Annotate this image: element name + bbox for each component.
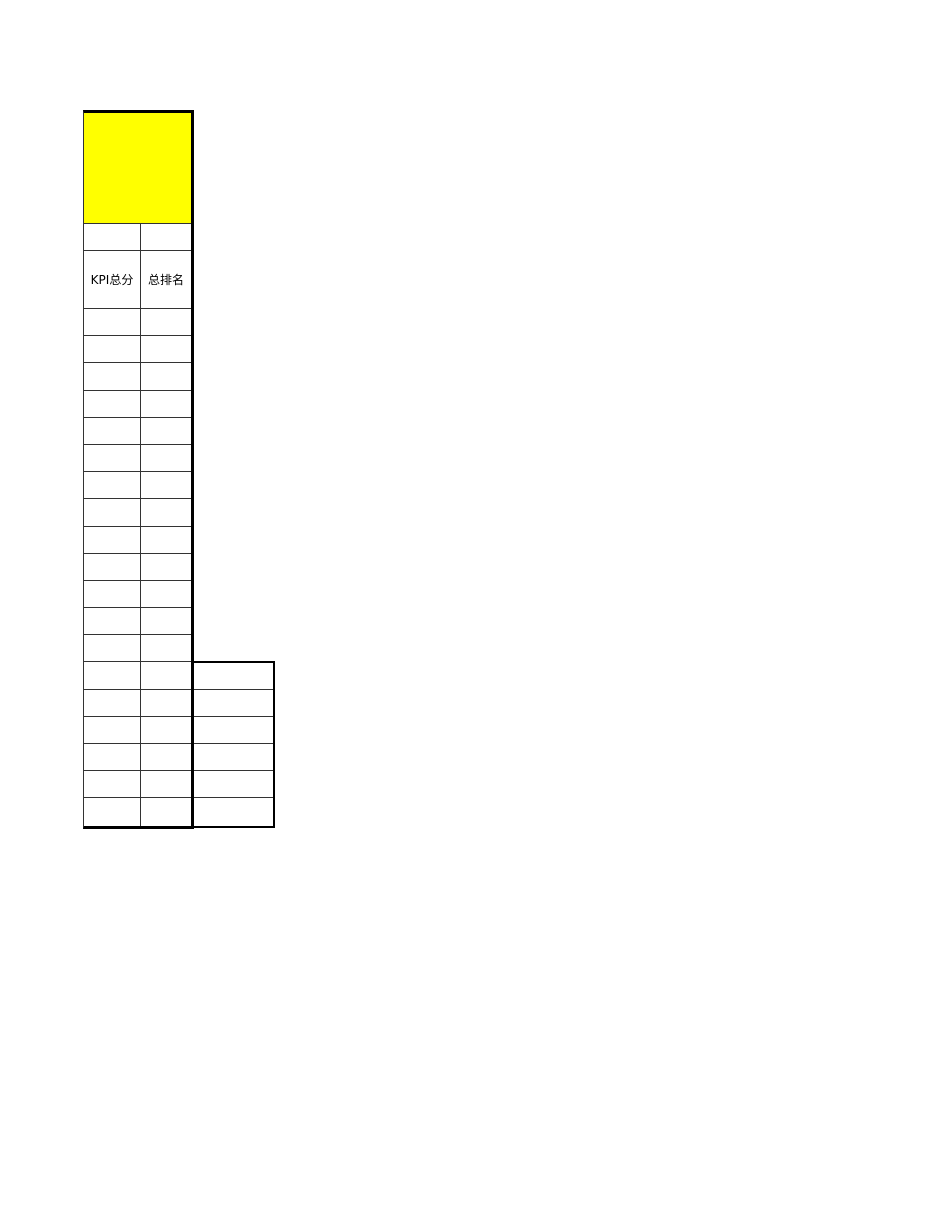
table-row	[84, 798, 191, 825]
kpi-table: KPI总分 总排名	[83, 110, 194, 829]
spreadsheet-cell[interactable]	[141, 771, 191, 797]
spreadsheet-cell[interactable]	[194, 771, 273, 798]
spreadsheet-cell[interactable]	[141, 472, 191, 498]
spreadsheet-cell[interactable]	[84, 581, 141, 607]
spreadsheet-cell[interactable]	[84, 527, 141, 553]
table-row	[84, 527, 191, 554]
spreadsheet-cell[interactable]	[84, 798, 141, 825]
spreadsheet-cell[interactable]	[84, 635, 141, 661]
spreadsheet-cell[interactable]	[84, 771, 141, 797]
table-row	[84, 771, 191, 798]
table-row	[84, 472, 191, 499]
table-row	[84, 554, 191, 581]
spreadsheet-cell[interactable]	[141, 744, 191, 770]
merged-title-cell[interactable]	[84, 113, 191, 224]
spreadsheet-cell[interactable]	[84, 309, 141, 335]
spreadsheet-cell[interactable]	[84, 499, 141, 525]
spreadsheet-cell[interactable]	[141, 499, 191, 525]
spreadsheet-cell[interactable]	[84, 690, 141, 716]
table-header-row: KPI总分 总排名	[84, 251, 191, 309]
spreadsheet-cell[interactable]	[141, 224, 191, 250]
spreadsheet-cell[interactable]	[194, 690, 273, 717]
spreadsheet-cell[interactable]	[141, 418, 191, 444]
table-row	[84, 391, 191, 418]
table-row	[84, 418, 191, 445]
spreadsheet-cell[interactable]	[194, 798, 273, 825]
table-row	[84, 309, 191, 336]
spreadsheet-cell[interactable]	[84, 662, 141, 688]
spreadsheet-cell[interactable]	[84, 445, 141, 471]
spreadsheet-cell[interactable]	[141, 717, 191, 743]
table-row	[84, 717, 191, 744]
spreadsheet-cell[interactable]	[141, 336, 191, 362]
table-row	[84, 662, 191, 689]
spreadsheet-cell[interactable]	[141, 662, 191, 688]
spreadsheet-cell[interactable]	[84, 608, 141, 634]
spreadsheet-cell[interactable]	[84, 744, 141, 770]
spreadsheet-cell[interactable]	[84, 418, 141, 444]
spreadsheet-cell[interactable]	[141, 635, 191, 661]
table-row	[84, 336, 191, 363]
spreadsheet-cell[interactable]	[84, 336, 141, 362]
spreadsheet-cell[interactable]	[141, 554, 191, 580]
spreadsheet-cell[interactable]	[194, 744, 273, 771]
spreadsheet-cell[interactable]	[84, 363, 141, 389]
table-row	[84, 499, 191, 526]
table-row	[84, 744, 191, 771]
spreadsheet-cell[interactable]	[141, 608, 191, 634]
table-row	[84, 224, 191, 251]
table-row	[84, 608, 191, 635]
spreadsheet-cell[interactable]	[141, 690, 191, 716]
spreadsheet-cell[interactable]	[141, 527, 191, 553]
table-row	[84, 635, 191, 662]
spreadsheet-cell[interactable]	[84, 554, 141, 580]
spreadsheet-cell[interactable]	[141, 798, 191, 825]
spreadsheet-cell[interactable]	[141, 581, 191, 607]
spreadsheet-canvas: KPI总分 总排名	[0, 0, 950, 1230]
spreadsheet-cell[interactable]	[141, 445, 191, 471]
spreadsheet-cell[interactable]	[194, 717, 273, 744]
overall-rank-header-cell[interactable]: 总排名	[141, 251, 191, 308]
spreadsheet-cell[interactable]	[84, 472, 141, 498]
spreadsheet-cell[interactable]	[84, 391, 141, 417]
table-row	[84, 690, 191, 717]
spreadsheet-cell[interactable]	[141, 363, 191, 389]
spreadsheet-cell[interactable]	[141, 309, 191, 335]
table-row	[84, 445, 191, 472]
main-table-body	[84, 309, 191, 826]
spreadsheet-cell[interactable]	[194, 663, 273, 690]
spreadsheet-cell[interactable]	[84, 717, 141, 743]
table-row	[84, 363, 191, 390]
extra-column	[194, 661, 275, 828]
spreadsheet-cell[interactable]	[141, 391, 191, 417]
spreadsheet-cell[interactable]	[84, 224, 141, 250]
table-row	[84, 581, 191, 608]
kpi-total-header-cell[interactable]: KPI总分	[84, 251, 141, 308]
